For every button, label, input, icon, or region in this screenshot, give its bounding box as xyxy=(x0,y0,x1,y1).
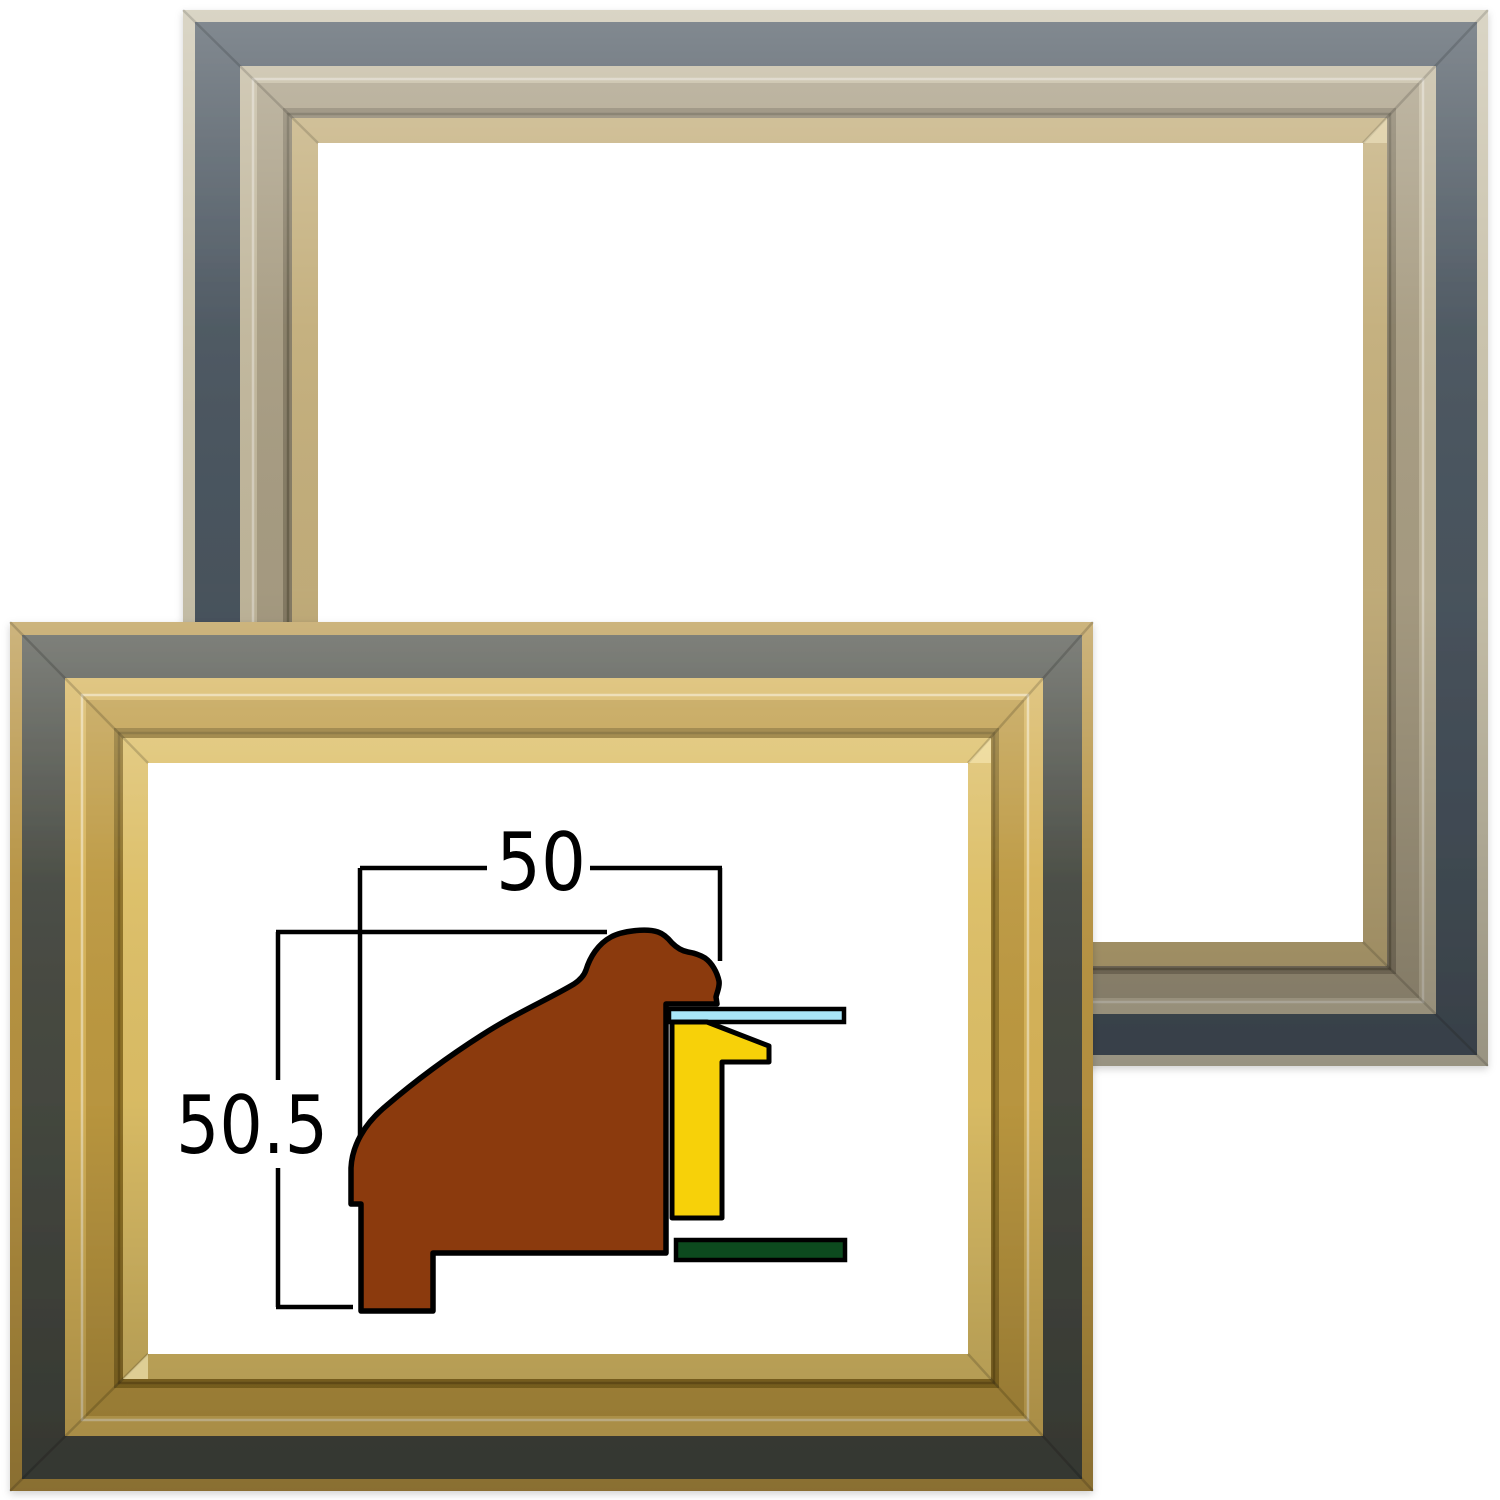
product-image-canvas: 50 50.5 xyxy=(0,0,1500,1500)
width-value-label: 50 xyxy=(496,816,586,909)
height-value-label: 50.5 xyxy=(176,1079,328,1172)
product-image: 50 50.5 xyxy=(0,0,1500,1500)
backboard-strip xyxy=(676,1240,845,1260)
